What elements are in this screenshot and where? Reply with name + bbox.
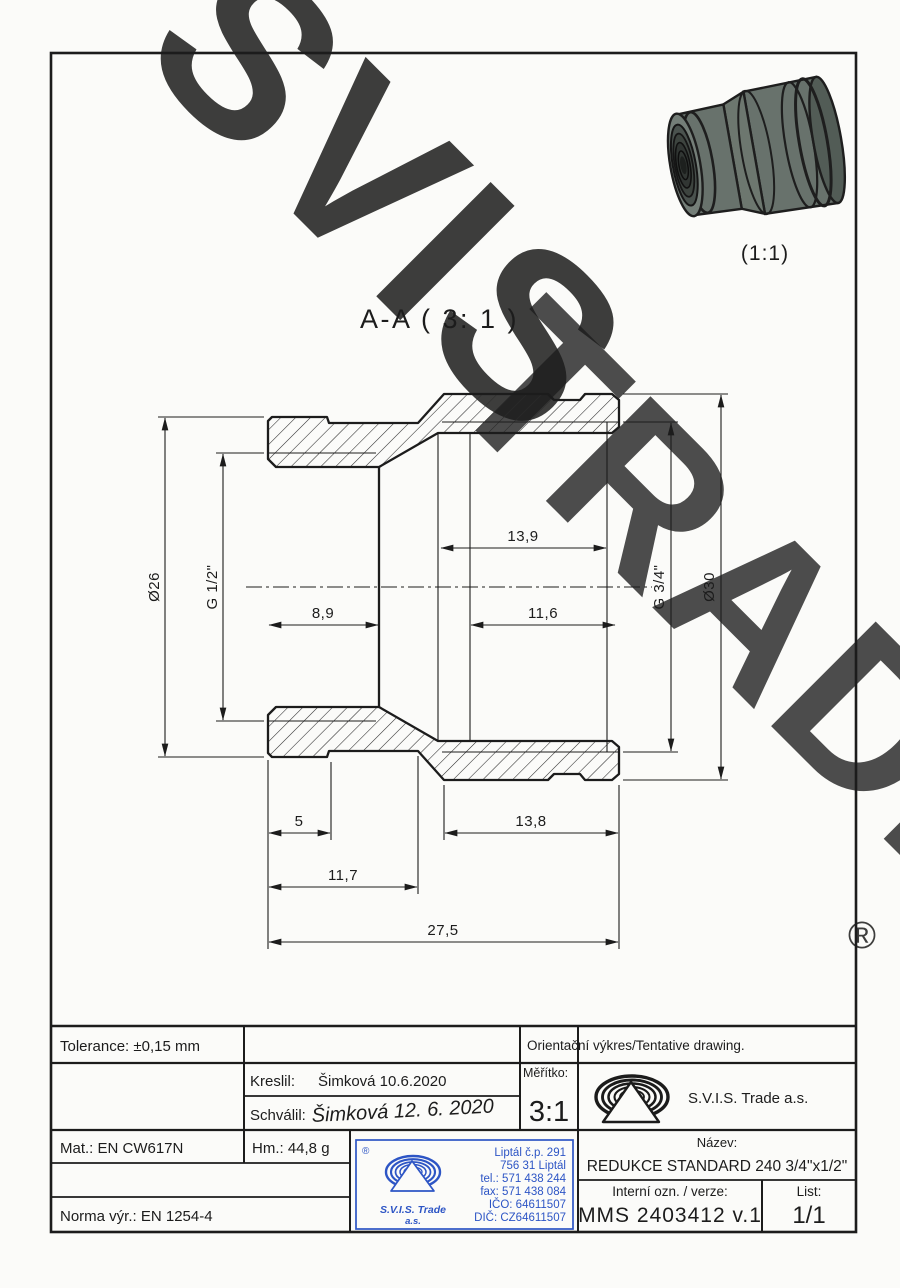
stamp-address: Liptál č.p. 291 756 31 Liptál tel.: 571 …	[474, 1147, 566, 1224]
section-title: A-A ( 3: 1 )	[360, 304, 519, 334]
stamp-line4: fax: 571 438 084	[480, 1186, 566, 1198]
stamp-company1: S.V.I.S. Trade	[380, 1204, 446, 1216]
nazev-label: Název:	[697, 1135, 737, 1150]
norma-value: Norma výr.: EN 1254-4	[60, 1208, 213, 1225]
dim-138: 13,8	[515, 813, 546, 830]
list-value: 1/1	[792, 1202, 825, 1229]
dim-g34: G 3/4"	[651, 564, 668, 609]
schvalil-signature: Šimková 12. 6. 2020	[311, 1094, 494, 1127]
part-3d-render: (1:1)	[659, 74, 852, 265]
watermark-trade: TRADE	[407, 257, 900, 965]
svis-logo-icon	[596, 1076, 668, 1122]
section-lower-cut	[268, 707, 619, 780]
watermark-registered-icon: ®	[848, 915, 876, 957]
company-name: S.V.I.S. Trade a.s.	[688, 1090, 808, 1107]
meritko-label: Měřítko:	[523, 1066, 568, 1080]
dim-117: 11,7	[328, 867, 358, 884]
stamp-line3: tel.: 571 438 244	[480, 1173, 566, 1185]
dim-139: 13,9	[507, 528, 538, 545]
dim-dia26: Ø26	[146, 572, 163, 602]
title-block-grid	[51, 1026, 856, 1232]
drawing-page: SVIS TRADE ® (1:1) A-	[0, 0, 900, 1288]
tolerance-value: Tolerance: ±0,15 mm	[60, 1038, 200, 1055]
stamp-line6: DIČ: CZ64611507	[474, 1211, 566, 1224]
stamp-logo-icon	[386, 1156, 440, 1191]
nazev-value: REDUKCE STANDARD 240 3/4"x1/2"	[587, 1158, 848, 1175]
stamp-line2: 756 31 Liptál	[500, 1160, 566, 1172]
stamp-line5: IČO: 64611507	[489, 1198, 566, 1211]
kreslil-label: Kreslil:	[250, 1073, 295, 1090]
schvalil-label: Schválil:	[250, 1107, 306, 1124]
render-scale-label: (1:1)	[741, 242, 789, 265]
stamp-line1: Liptál č.p. 291	[494, 1147, 566, 1159]
stamp-registered-icon: ®	[362, 1146, 370, 1157]
dim-89: 8,9	[312, 605, 334, 622]
kreslil-value: Šimková 10.6.2020	[318, 1073, 446, 1090]
dim-275: 27,5	[427, 922, 458, 939]
title-block: Tolerance: ±0,15 mm Orientační výkres/Te…	[51, 1026, 856, 1232]
interni-value: MMS 2403412 v.1	[578, 1204, 762, 1227]
company-stamp: ® S.V.I.S. Trade a.s. Liptál č.p. 291 75…	[356, 1140, 573, 1229]
stamp-company2: a.s.	[405, 1216, 421, 1227]
dim-dia30: Ø30	[701, 572, 718, 602]
hm-value: Hm.: 44,8 g	[252, 1140, 330, 1157]
meritko-value: 3:1	[529, 1096, 569, 1128]
orientation-note: Orientační výkres/Tentative drawing.	[527, 1038, 745, 1053]
dim-5: 5	[295, 813, 304, 830]
interni-label: Interní ozn. / verze:	[612, 1184, 728, 1199]
list-label: List:	[797, 1184, 822, 1199]
dim-g12: G 1/2"	[204, 564, 221, 609]
mat-value: Mat.: EN CW617N	[60, 1140, 183, 1157]
dim-116: 11,6	[528, 605, 558, 622]
